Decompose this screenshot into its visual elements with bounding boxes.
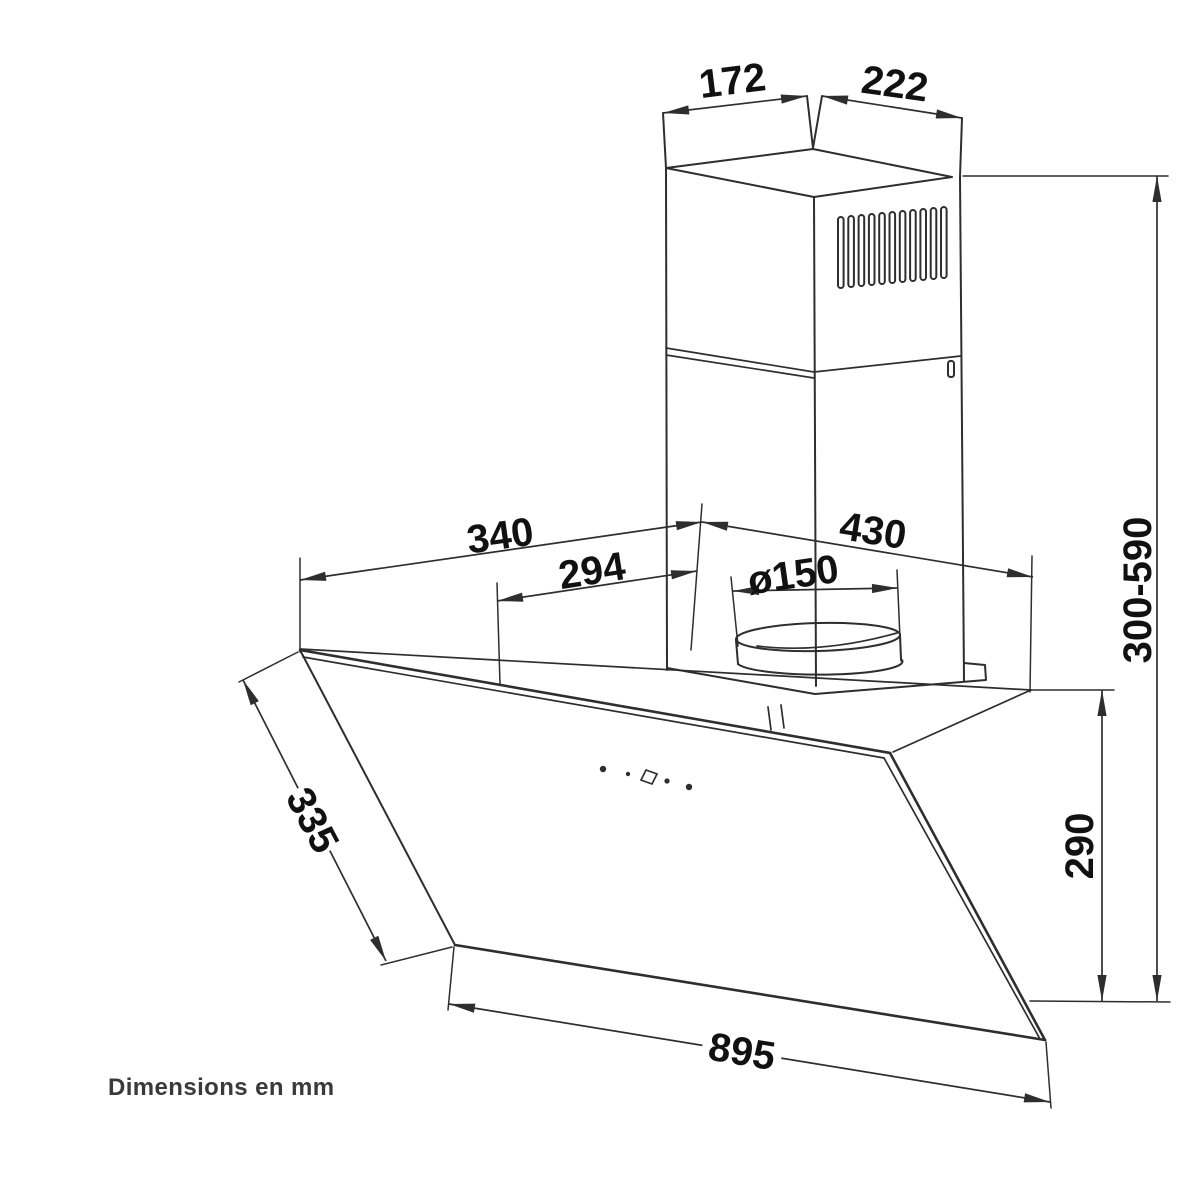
chimney-top-right-corner — [960, 118, 962, 177]
hood-top-right-edge — [893, 690, 1031, 752]
dimension-labels: 172 222 340 294 430 ø150 300-590 290 335… — [276, 55, 1160, 1080]
dim-label-294: 294 — [556, 544, 630, 598]
dim-label-895: 895 — [705, 1025, 778, 1079]
technical-drawing: 172 222 340 294 430 ø150 300-590 290 335… — [0, 0, 1200, 1200]
dimension-lines — [243, 176, 1157, 1102]
dim-label-172: 172 — [697, 55, 769, 107]
dim-label-duct-diameter: ø150 — [745, 547, 841, 603]
chimney-front-edge — [814, 197, 816, 686]
hood-top — [300, 621, 1031, 752]
dim-label-335: 335 — [277, 781, 347, 861]
dimension-drawing-page: 172 222 340 294 430 ø150 300-590 290 335… — [0, 0, 1200, 1200]
glass-top-edge-inner — [303, 657, 884, 758]
units-note: Dimensions en mm — [108, 1074, 334, 1102]
dim-label-290: 290 — [1058, 813, 1102, 880]
dim-label-222: 222 — [859, 58, 931, 111]
dim-label-430: 430 — [837, 504, 910, 558]
glass-mount-tick-2 — [781, 705, 784, 728]
vent-slots — [838, 207, 947, 288]
chimney-top-left-corner — [663, 113, 666, 168]
chimney-right-edge — [960, 177, 964, 681]
glass-panel — [300, 650, 1045, 1040]
telescopic-joint-line-2 — [666, 355, 814, 378]
dim-label-340: 340 — [464, 510, 536, 563]
chimney-left-edge — [666, 168, 667, 670]
duct-collar — [736, 621, 903, 675]
glass-bottom-edge — [455, 945, 1045, 1040]
glass-right-edge — [890, 753, 1045, 1040]
extension-lines — [239, 176, 1170, 1108]
touch-controls — [600, 766, 692, 790]
chimney-top-notch — [807, 96, 822, 148]
glass-mount-tick-1 — [768, 707, 771, 730]
telescopic-joint-line — [666, 348, 961, 372]
chimney-top-opening — [666, 149, 952, 197]
dim-label-300-590: 300-590 — [1116, 517, 1160, 664]
chimney-duct — [663, 96, 964, 686]
glass-right-edge-inner — [884, 758, 1040, 1039]
power-key-outline — [641, 770, 657, 784]
joint-clip-detail — [948, 361, 954, 377]
